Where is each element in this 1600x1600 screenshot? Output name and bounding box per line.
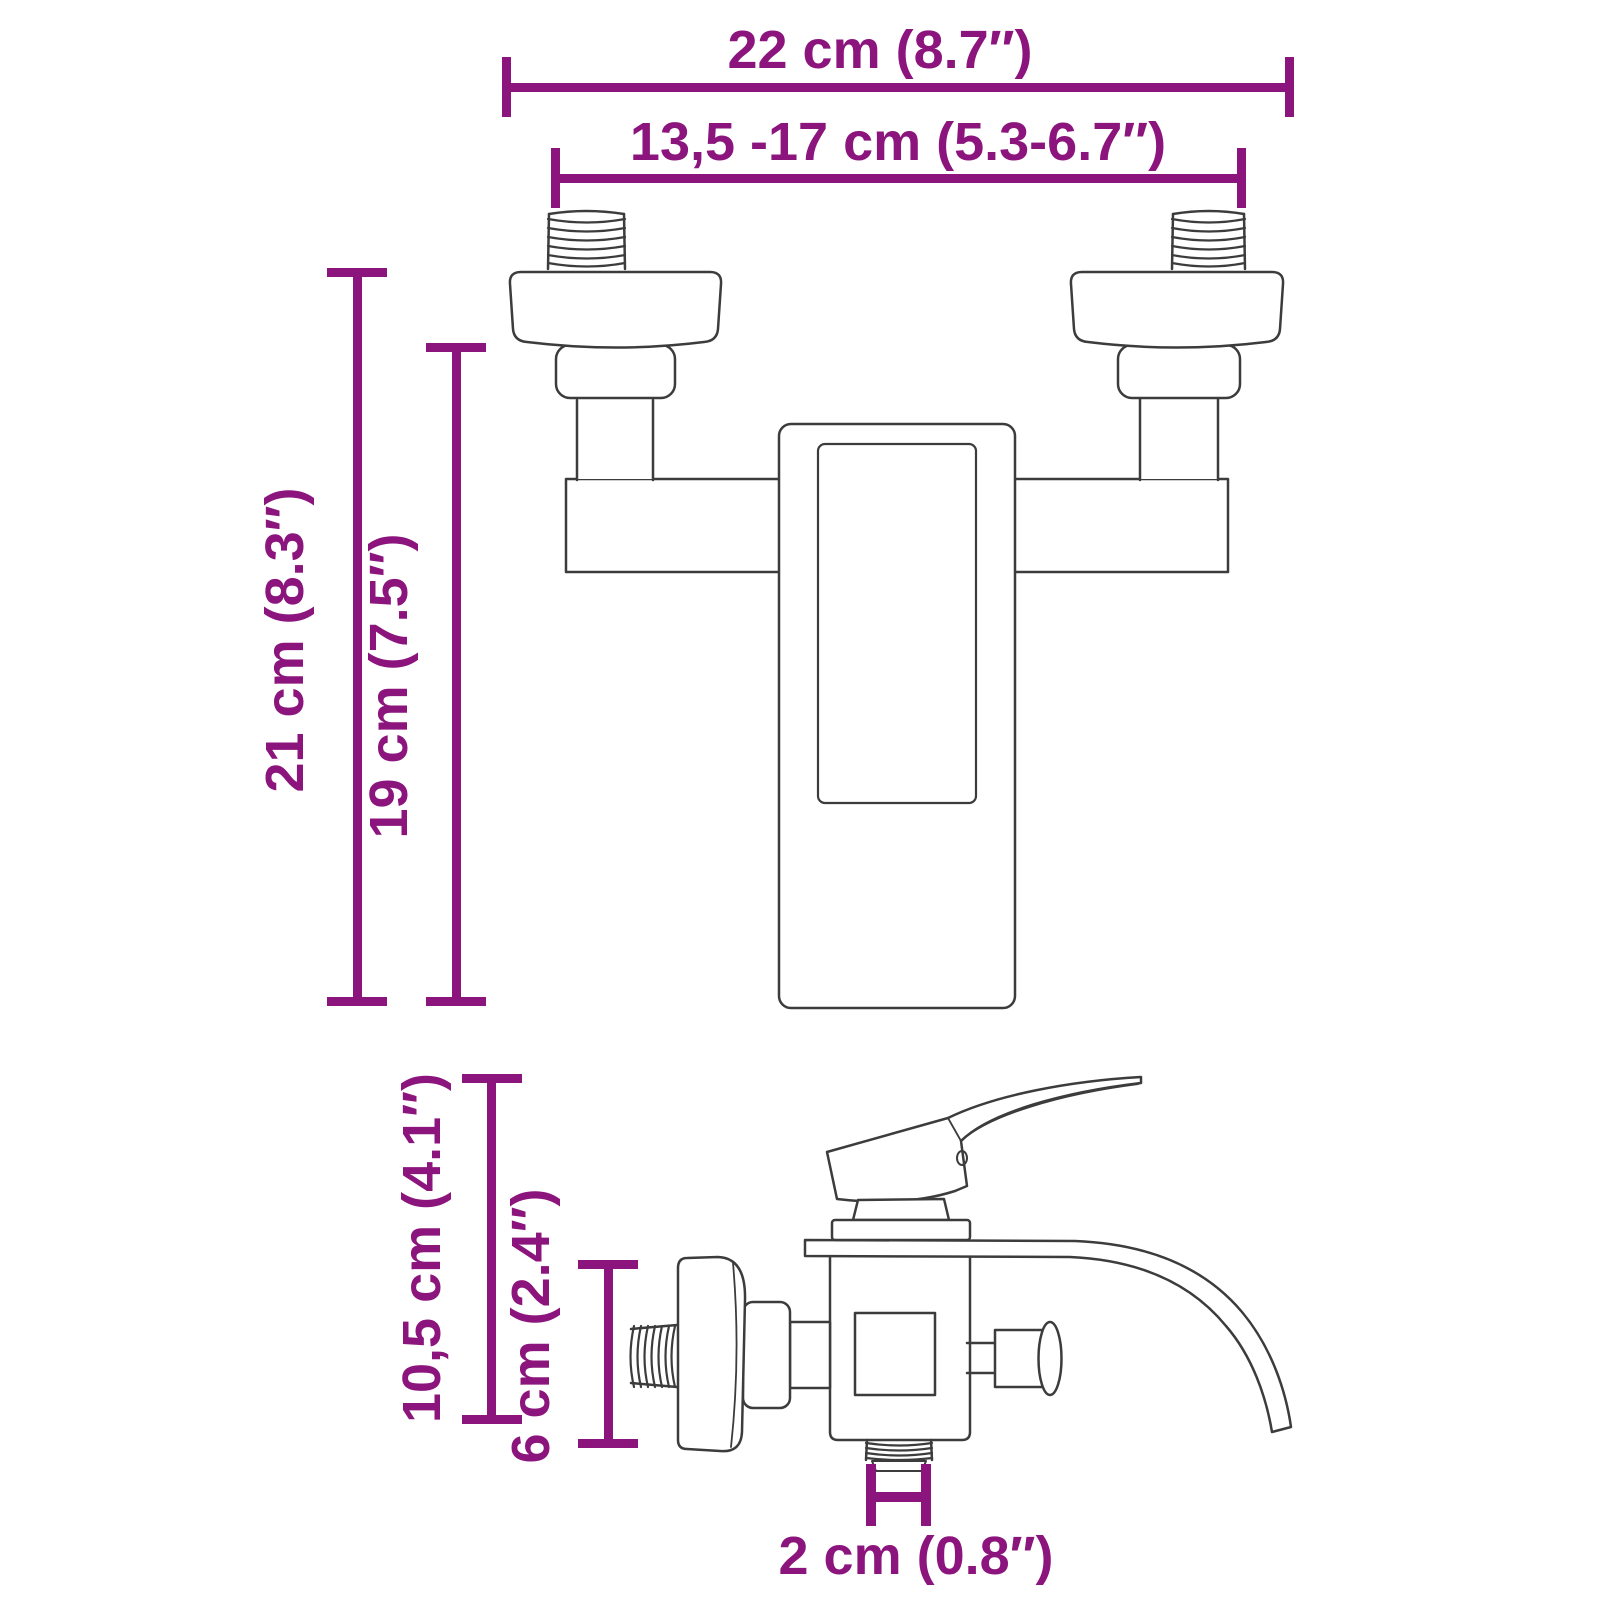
lever-handle [827, 1077, 1141, 1202]
dim-tick-right [1285, 57, 1294, 117]
body-block [855, 1313, 935, 1395]
faucet-dimension-diagram: 22 cm (8.7″) 13,5 -17 cm (5.3-6.7″) 21 c… [0, 0, 1600, 1600]
dimension-connection-spacing: 13,5 -17 cm (5.3-6.7″) [551, 112, 1246, 208]
dimension-body-height: 19 cm (7.5″) [359, 343, 486, 1006]
label-connection-spacing: 13,5 -17 cm (5.3-6.7″) [630, 112, 1166, 172]
dim-line [555, 174, 1241, 183]
left-nut [556, 345, 675, 398]
dim-tick-top [578, 1260, 638, 1269]
handle-neck [853, 1199, 949, 1220]
dim-line [487, 1078, 496, 1420]
dim-tick-bottom [327, 997, 387, 1006]
label-side-total-height: 10,5 cm (4.1″) [392, 1073, 452, 1423]
front-view [510, 211, 1283, 1008]
label-overall-height: 21 cm (8.3″) [255, 487, 315, 792]
label-side-body-height: 6 cm (2.4″) [501, 1189, 561, 1464]
left-pipe [577, 400, 653, 480]
dim-tick-left [502, 57, 511, 117]
dim-tick-bottom [578, 1439, 638, 1448]
dim-tick-top [426, 343, 486, 352]
dimension-overall-width: 22 cm (8.7″) [502, 20, 1294, 117]
left-flange [510, 272, 721, 348]
right-nut [1118, 345, 1240, 398]
label-body-height: 19 cm (7.5″) [359, 533, 419, 838]
side-connector [790, 1322, 830, 1388]
dim-line [604, 1264, 613, 1444]
dim-line [506, 83, 1290, 92]
dimension-outlet-width: 2 cm (0.8″) [779, 1464, 1054, 1586]
side-thread-connector-icon [631, 1325, 678, 1387]
dim-line [452, 347, 461, 1002]
side-view [631, 1077, 1292, 1471]
dimension-side-body-height: 6 cm (2.4″) [501, 1189, 638, 1464]
diagram-canvas: 22 cm (8.7″) 13,5 -17 cm (5.3-6.7″) 21 c… [0, 0, 1600, 1600]
left-thread-connector-icon [548, 211, 625, 269]
label-outlet-width: 2 cm (0.8″) [779, 1526, 1054, 1586]
dim-tick-top [327, 268, 387, 277]
handle-base-plate [832, 1220, 970, 1240]
dim-line [866, 1492, 931, 1502]
side-nut [743, 1302, 790, 1408]
label-overall-width: 22 cm (8.7″) [727, 20, 1032, 80]
dim-tick-left [551, 148, 560, 208]
right-thread-connector-icon [1172, 211, 1245, 269]
mixer-body-inner-panel [818, 444, 976, 803]
dim-tick-top [462, 1074, 522, 1083]
diverter-knob [967, 1322, 1062, 1395]
dim-tick-bottom [426, 997, 486, 1006]
right-flange [1071, 272, 1283, 348]
dim-tick-right [1237, 148, 1246, 208]
right-pipe [1140, 398, 1218, 480]
